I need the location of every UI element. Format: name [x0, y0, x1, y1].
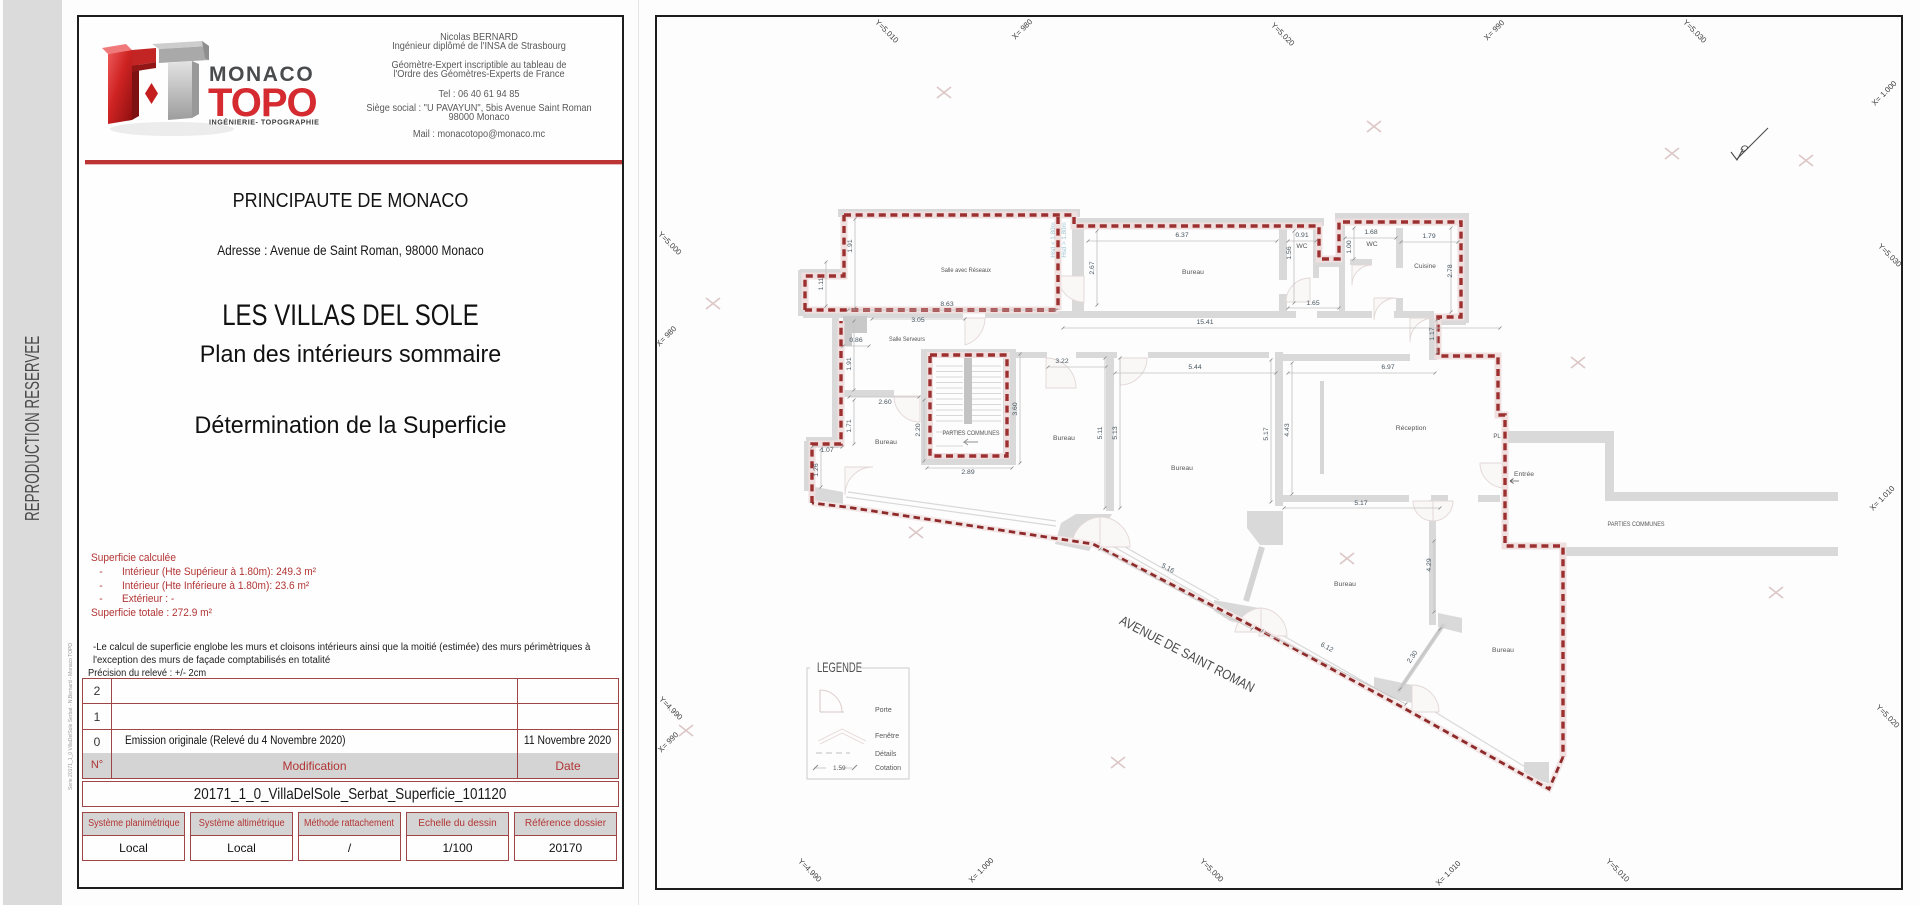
svg-text:LEGENDE: LEGENDE	[817, 659, 862, 675]
svg-text:5.11: 5.11	[1097, 426, 1104, 439]
svg-text:1.71: 1.71	[846, 419, 853, 432]
svg-text:3.60: 3.60	[1012, 402, 1019, 415]
svg-text:1.91: 1.91	[846, 357, 853, 370]
svg-text:2.20: 2.20	[915, 423, 922, 436]
svg-text:Cotation: Cotation	[875, 765, 901, 772]
svg-text:1.59: 1.59	[833, 765, 846, 772]
svg-text:Bureau: Bureau	[1492, 647, 1514, 654]
svg-text:2.89: 2.89	[961, 469, 974, 476]
svg-text:WC: WC	[1366, 241, 1377, 248]
svg-text:INGÉNIERIE- TOPOGRAPHIE: INGÉNIERIE- TOPOGRAPHIE	[209, 118, 319, 127]
svg-text:1.26: 1.26	[813, 463, 820, 476]
svg-text:Hsd < 1.80m: Hsd < 1.80m	[1050, 222, 1057, 257]
svg-text:5.13: 5.13	[1112, 426, 1119, 439]
svg-text:0.91: 0.91	[1295, 232, 1308, 239]
svg-text:Salle Serveurs: Salle Serveurs	[889, 336, 926, 343]
svg-text:5.17: 5.17	[1263, 427, 1270, 440]
svg-text:PL: PL	[1493, 434, 1501, 440]
svg-text:Entrée: Entrée	[1514, 471, 1534, 478]
svg-text:PARTIES COMMUNES: PARTIES COMMUNES	[1608, 521, 1665, 528]
svg-text:Réception: Réception	[1396, 425, 1427, 432]
svg-text:Porte: Porte	[875, 707, 892, 714]
svg-text:1.17: 1.17	[1429, 327, 1436, 340]
svg-text:1.56: 1.56	[1286, 246, 1293, 259]
svg-text:Détails: Détails	[875, 751, 897, 758]
svg-text:Hsd > 1.80m: Hsd > 1.80m	[1061, 222, 1068, 257]
svg-text:6.37: 6.37	[1175, 232, 1188, 239]
svg-text:6.97: 6.97	[1381, 364, 1394, 371]
svg-text:Bureau: Bureau	[1182, 269, 1204, 276]
svg-text:WC: WC	[1296, 243, 1307, 250]
svg-text:3.22: 3.22	[1055, 358, 1068, 365]
svg-text:1.00: 1.00	[1346, 240, 1353, 253]
svg-text:1.07: 1.07	[820, 447, 833, 454]
svg-text:8.63: 8.63	[940, 301, 953, 308]
svg-text:1.79: 1.79	[1422, 233, 1435, 240]
svg-text:Bureau: Bureau	[875, 439, 897, 446]
svg-text:5.44: 5.44	[1188, 364, 1201, 371]
svg-text:1.11: 1.11	[818, 277, 825, 290]
svg-text:PARTIES COMMUNES: PARTIES COMMUNES	[943, 430, 1000, 437]
svg-text:4.43: 4.43	[1284, 423, 1291, 436]
svg-text:15.41: 15.41	[1196, 319, 1213, 326]
svg-text:5.17: 5.17	[1354, 500, 1367, 507]
svg-text:0.86: 0.86	[849, 337, 862, 344]
svg-text:2.78: 2.78	[1447, 264, 1454, 277]
svg-text:1.65: 1.65	[1306, 300, 1319, 307]
svg-text:Bureau: Bureau	[1171, 465, 1193, 472]
svg-text:1.91: 1.91	[847, 239, 854, 252]
svg-text:Fenêtre: Fenêtre	[875, 733, 899, 740]
svg-text:1.68: 1.68	[1364, 229, 1377, 236]
svg-text:3.05: 3.05	[911, 317, 924, 324]
svg-text:2.67: 2.67	[1089, 261, 1096, 274]
svg-text:Bureau: Bureau	[1053, 435, 1075, 442]
svg-text:2.60: 2.60	[878, 399, 891, 406]
svg-text:4.29: 4.29	[1426, 558, 1433, 571]
svg-text:Salle avec Réseaux: Salle avec Réseaux	[941, 267, 992, 274]
svg-text:Bureau: Bureau	[1334, 581, 1356, 588]
svg-text:Cuisine: Cuisine	[1414, 263, 1436, 270]
